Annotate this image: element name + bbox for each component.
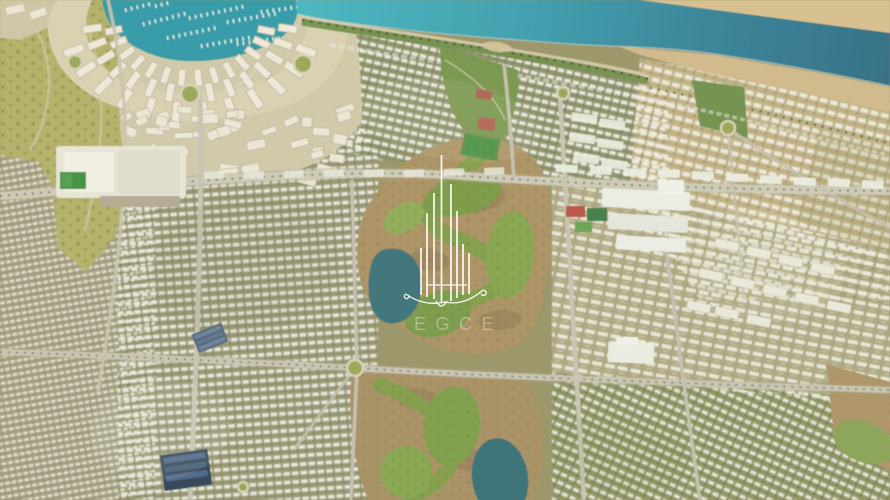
svg-text:EGCE: EGCE — [414, 314, 503, 334]
